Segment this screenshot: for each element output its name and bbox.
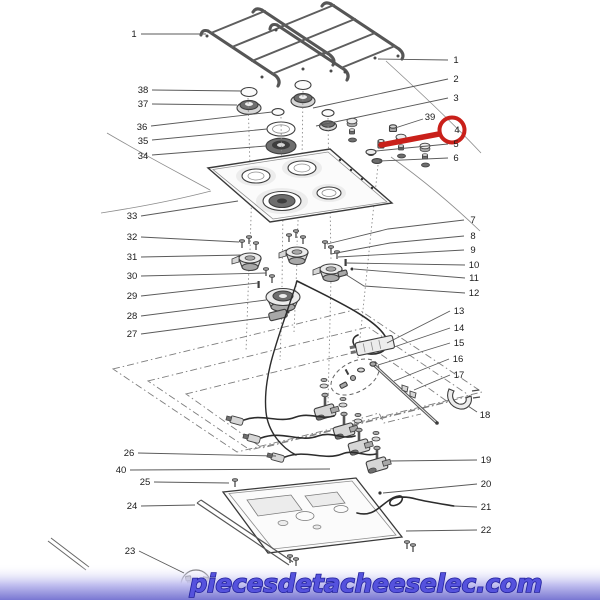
- part-label-30: 30: [127, 271, 138, 282]
- leader-line-37: [152, 104, 237, 105]
- hob-top-panel: [208, 149, 392, 222]
- screw-dot-part-20: [378, 491, 381, 494]
- leader-line-24: [141, 505, 195, 506]
- leader-line-25: [154, 482, 229, 483]
- burner-cap: [241, 88, 257, 97]
- leader-line-29: [141, 283, 258, 296]
- part-label-26: 26: [124, 448, 135, 459]
- venturi-part-5: [366, 149, 376, 155]
- leader-line-31: [141, 255, 242, 257]
- part-label-33: 33: [127, 211, 138, 222]
- leader-line-40: [130, 469, 330, 470]
- part-label-19: 19: [481, 455, 492, 466]
- part-label-17: 17: [454, 370, 465, 381]
- part-label-38: 38: [138, 85, 149, 96]
- part-label-37: 37: [138, 99, 149, 110]
- leader-line-39: [395, 119, 423, 128]
- part-label-29: 29: [127, 291, 138, 302]
- part-label-35: 35: [138, 136, 149, 147]
- leader-line-38: [152, 90, 242, 91]
- watermark-link: piecesdetacheeselec.com: [189, 569, 543, 598]
- leader-line-11: [354, 269, 465, 278]
- gas-valves: [314, 378, 392, 474]
- part-label-6: 6: [453, 153, 458, 164]
- ignition-harness-group: [265, 281, 480, 455]
- part-label-32: 32: [127, 232, 138, 243]
- part-label-36: 36: [137, 122, 148, 133]
- support-bracket: [448, 389, 480, 409]
- parts-diagram-page: piecesdetacheeselec.com 1383736353433323…: [0, 0, 600, 600]
- aux-burner-cap: [322, 110, 334, 117]
- leader-line-9: [338, 250, 464, 257]
- part-label-40: 40: [116, 465, 127, 476]
- part-label-39: 39: [425, 112, 436, 123]
- part-label-9: 9: [470, 245, 475, 256]
- leader-line-27: [141, 317, 269, 334]
- part-label-24: 24: [127, 501, 138, 512]
- part-label-16: 16: [453, 354, 464, 365]
- part-label-1: 1: [453, 55, 458, 66]
- small-parts-detail-ellipse: [325, 352, 385, 403]
- part-label-31: 31: [127, 252, 138, 263]
- part-label-27: 27: [127, 329, 138, 340]
- burner-cap: [295, 81, 311, 90]
- leader-line-2: [313, 79, 448, 108]
- highlight-pointer: [381, 134, 439, 145]
- exploded-diagram: piecesdetacheeselec.com 1383736353433323…: [0, 0, 600, 600]
- part-label-20: 20: [481, 479, 492, 490]
- part-label-4: 4: [454, 125, 459, 136]
- leader-line-6: [379, 158, 448, 161]
- leader-line-18: [468, 406, 477, 412]
- leader-line-1: [378, 59, 448, 60]
- leader-line-7: [327, 220, 464, 244]
- part-label-14: 14: [454, 323, 465, 334]
- part-label-10: 10: [469, 260, 480, 271]
- leader-line-21: [454, 506, 477, 507]
- part-label-2: 2: [453, 74, 458, 85]
- leader-line-36: [151, 112, 272, 126]
- thermocouple-pin: [345, 259, 347, 266]
- part-label-23: 23: [125, 546, 136, 557]
- small-screw-dot: [351, 268, 354, 271]
- part-label-34: 34: [138, 151, 149, 162]
- part-label-13: 13: [454, 306, 465, 317]
- screw-part-25: [232, 479, 237, 487]
- leader-line-19: [390, 460, 477, 461]
- part-label-1: 1: [131, 29, 136, 40]
- leader-line-16: [394, 359, 449, 381]
- part-label-22: 22: [481, 525, 492, 536]
- part-label-15: 15: [454, 338, 465, 349]
- leader-line-22: [406, 530, 477, 531]
- pan-support-grids: [201, 3, 403, 86]
- part-label-12: 12: [469, 288, 480, 299]
- highlight-circle: [440, 118, 465, 143]
- part-label-8: 8: [470, 231, 475, 242]
- projection-lines: [246, 91, 378, 404]
- part-label-18: 18: [480, 410, 491, 421]
- part-label-21: 21: [481, 502, 492, 513]
- leader-line-30: [141, 273, 266, 276]
- leader-line-10: [346, 263, 465, 265]
- leader-line-26: [138, 453, 276, 456]
- part-label-7: 7: [470, 215, 475, 226]
- part-label-5: 5: [453, 139, 458, 150]
- part-label-28: 28: [127, 311, 138, 322]
- burner-cap-stacks: [237, 81, 337, 154]
- leader-line-35: [152, 129, 267, 140]
- leader-line-20: [383, 484, 477, 493]
- part-label-25: 25: [140, 477, 151, 488]
- watermark: piecesdetacheeselec.com: [0, 564, 600, 600]
- leader-line-17: [414, 375, 450, 390]
- leader-line-14: [394, 328, 450, 347]
- leader-line-34: [152, 146, 266, 155]
- leader-line-13: [387, 311, 450, 343]
- small-cap: [272, 109, 284, 116]
- large-burner-assembly: [258, 268, 301, 321]
- part-label-3: 3: [453, 93, 458, 104]
- leader-line-32: [141, 237, 239, 242]
- part-label-11: 11: [469, 273, 479, 284]
